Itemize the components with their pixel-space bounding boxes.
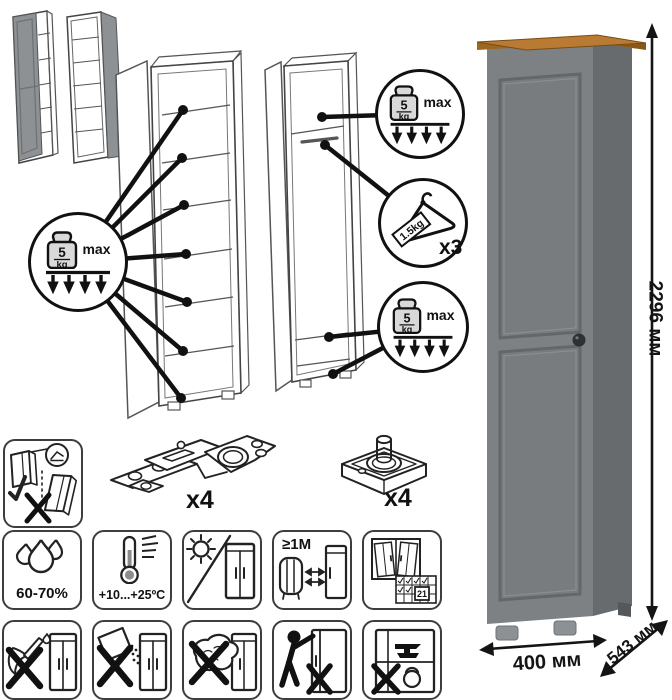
max-label: max [82, 242, 110, 256]
ventilation-icon: 21 [362, 530, 442, 610]
svg-text:5: 5 [401, 99, 408, 113]
wardrobe-side-face [593, 42, 632, 616]
hinge-qty-label: x4 [186, 488, 214, 513]
hanger-load-callout: 1.5kg x3 [378, 178, 468, 268]
min-distance-heat-icon: ≥1М [272, 530, 352, 610]
no-abrasive-sponge-icon [182, 620, 262, 700]
no-overload-icon [362, 620, 442, 700]
svg-text:kg: kg [57, 260, 68, 270]
door-knob [573, 334, 586, 347]
load-arrows [45, 270, 111, 295]
svg-text:kg: kg [399, 111, 409, 121]
no-sharp-tools-icon [2, 620, 82, 700]
weight-icon: 5 kg [388, 83, 420, 121]
weight-row: 5 kg max [391, 296, 454, 334]
load-arrows [389, 122, 451, 145]
hanger-icon: 1.5kg x3 [382, 182, 464, 264]
temperature-icon: +10...+25ºC [92, 530, 172, 610]
hanger-qty: x3 [439, 236, 462, 259]
top-shelf-load-callout: 5 kg max [375, 69, 465, 159]
weight-row: 5 kg max [45, 229, 110, 269]
weight-row: 5 kg max [388, 83, 451, 121]
humidity-label: 60-70% [4, 586, 80, 601]
height-dimension-label: 2296 мм [646, 261, 665, 377]
load-arrows [392, 335, 454, 358]
door-lower-panel [500, 346, 580, 600]
door-upper-panel [500, 74, 580, 338]
weight-icon: 5 kg [391, 296, 423, 334]
bottom-shelf-load-callout: 5 kg max [377, 281, 469, 373]
no-abrasive-powder-icon [92, 620, 172, 700]
weight-icon: 5 kg [45, 229, 79, 269]
temperature-label: +10...+25ºC [94, 589, 170, 602]
transport-upright-icon [3, 439, 83, 528]
max-label: max [426, 308, 454, 322]
no-direct-sunlight-icon [182, 530, 262, 610]
person-body [282, 636, 313, 685]
humidity-icon: 60-70% [2, 530, 82, 610]
svg-text:kg: kg [402, 324, 412, 334]
instruction-sheet: 5 kg max 5 kg max [0, 0, 672, 700]
shelf-load-callout: 5 kg max [28, 212, 128, 312]
calendar-day: 21 [417, 589, 427, 599]
max-label: max [423, 95, 451, 109]
svg-text:5: 5 [404, 312, 411, 326]
svg-text:5: 5 [59, 245, 67, 260]
no-hanging-on-door-icon [272, 620, 352, 700]
foot-qty-label: x4 [384, 486, 412, 511]
